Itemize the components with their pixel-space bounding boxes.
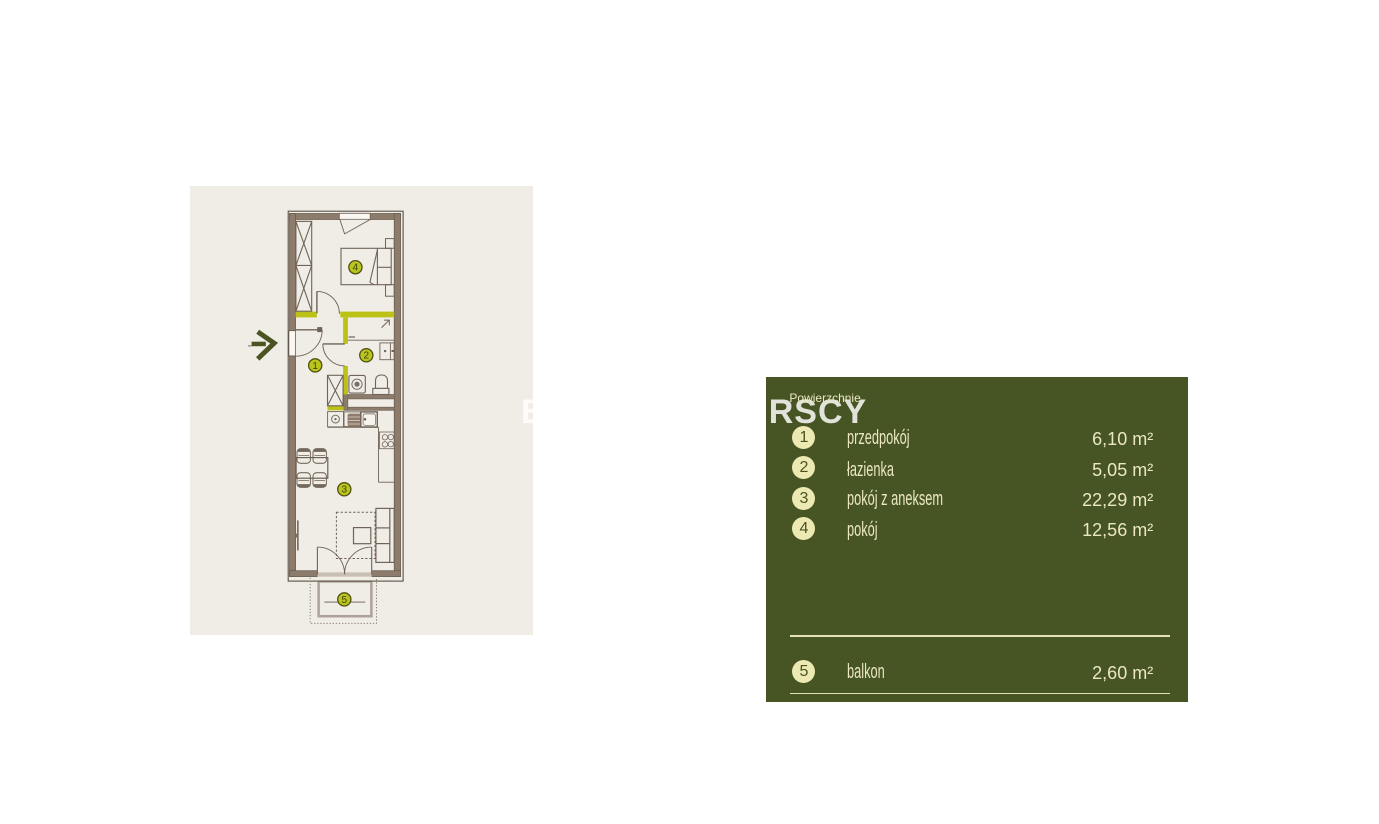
svg-text:5: 5 xyxy=(342,595,348,606)
svg-text:4: 4 xyxy=(353,263,359,274)
svg-text:3: 3 xyxy=(342,485,348,496)
svg-text:1: 1 xyxy=(312,361,318,372)
svg-text:2: 2 xyxy=(364,351,370,362)
